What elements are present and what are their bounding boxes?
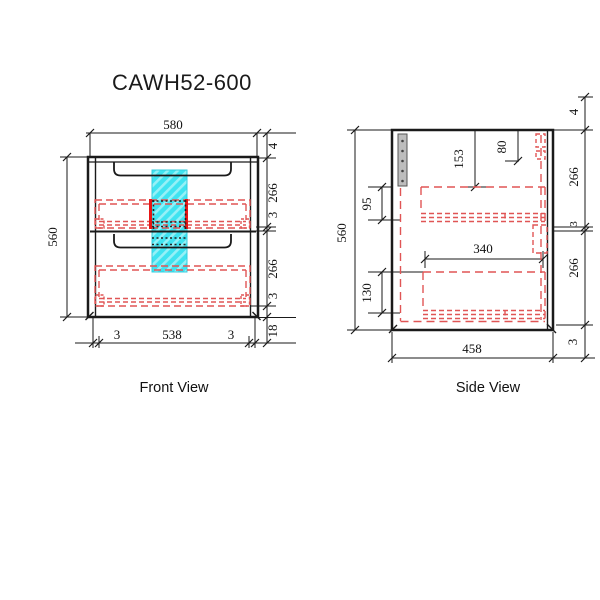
page-title: CAWH52-600 xyxy=(112,70,252,95)
front-dim-height: 560 xyxy=(45,227,60,247)
side-wall-bracket xyxy=(398,134,407,186)
side-drawer2-rails xyxy=(423,311,545,319)
side-corner-marks xyxy=(389,324,556,333)
front-dim-side-right: 3 xyxy=(228,327,235,342)
side-dim-drawer1-back: 95 xyxy=(359,198,374,211)
front-dim-top-width: 580 xyxy=(163,117,183,132)
side-drawer2-box xyxy=(423,272,545,319)
side-dim-drawer2-h: 266 xyxy=(566,258,581,278)
front-view-label: Front View xyxy=(139,380,209,396)
bracket-hole xyxy=(401,140,404,143)
side-view-hidden-lines xyxy=(401,134,548,322)
front-dim-gap1: 3 xyxy=(265,212,280,219)
front-drawer2-runner-right xyxy=(241,295,250,306)
side-dim-back-rail-drop: 80 xyxy=(494,141,509,154)
side-view-linework xyxy=(347,93,595,363)
front-dim-drawer1-h: 266 xyxy=(265,183,280,203)
bracket-hole xyxy=(401,170,404,173)
side-drawer1-box xyxy=(421,187,545,222)
front-drawer2-runner-left xyxy=(96,295,105,306)
side-front-fix-mid xyxy=(533,225,547,253)
side-dim-height: 560 xyxy=(334,223,349,243)
side-view-label: Side View xyxy=(456,380,521,396)
side-back-panel-hidden xyxy=(401,135,546,322)
bracket-hole xyxy=(401,150,404,153)
side-drawer1-rails xyxy=(421,214,545,222)
bracket-hole xyxy=(401,180,404,183)
side-dim-drawer-depth: 340 xyxy=(473,241,493,256)
side-dimension-lines xyxy=(347,97,595,363)
front-dim-inner-width: 538 xyxy=(162,327,182,342)
front-drawer1-runner-right xyxy=(241,219,250,228)
side-dim-gap2: 3 xyxy=(565,339,580,346)
side-dim-cutout-drop: 153 xyxy=(451,149,466,169)
side-cabinet-outline xyxy=(392,130,553,330)
vanity-drawing: CAWH52-600 580 56 xyxy=(0,0,600,600)
front-dim-gap2: 3 xyxy=(265,293,280,300)
front-dim-bottom-kick: 18 xyxy=(265,325,280,338)
bracket-hole xyxy=(401,160,404,163)
side-dim-gap1: 3 xyxy=(568,221,580,227)
side-dim-drawer2-back: 130 xyxy=(359,283,374,303)
front-drawer2-rails xyxy=(99,299,246,303)
front-drawer1-runner-left xyxy=(96,219,105,228)
side-dim-top-gap: 4 xyxy=(566,108,581,115)
front-drawer2-inner xyxy=(99,270,246,297)
front-dim-drawer2-h: 266 xyxy=(265,259,280,279)
technical-drawing-canvas: CAWH52-600 580 56 xyxy=(0,0,600,600)
side-dim-drawer1-h: 266 xyxy=(566,167,581,187)
front-dim-top-gap: 4 xyxy=(265,142,280,149)
side-dim-depth: 458 xyxy=(462,341,482,356)
front-dim-side-left: 3 xyxy=(114,327,121,342)
